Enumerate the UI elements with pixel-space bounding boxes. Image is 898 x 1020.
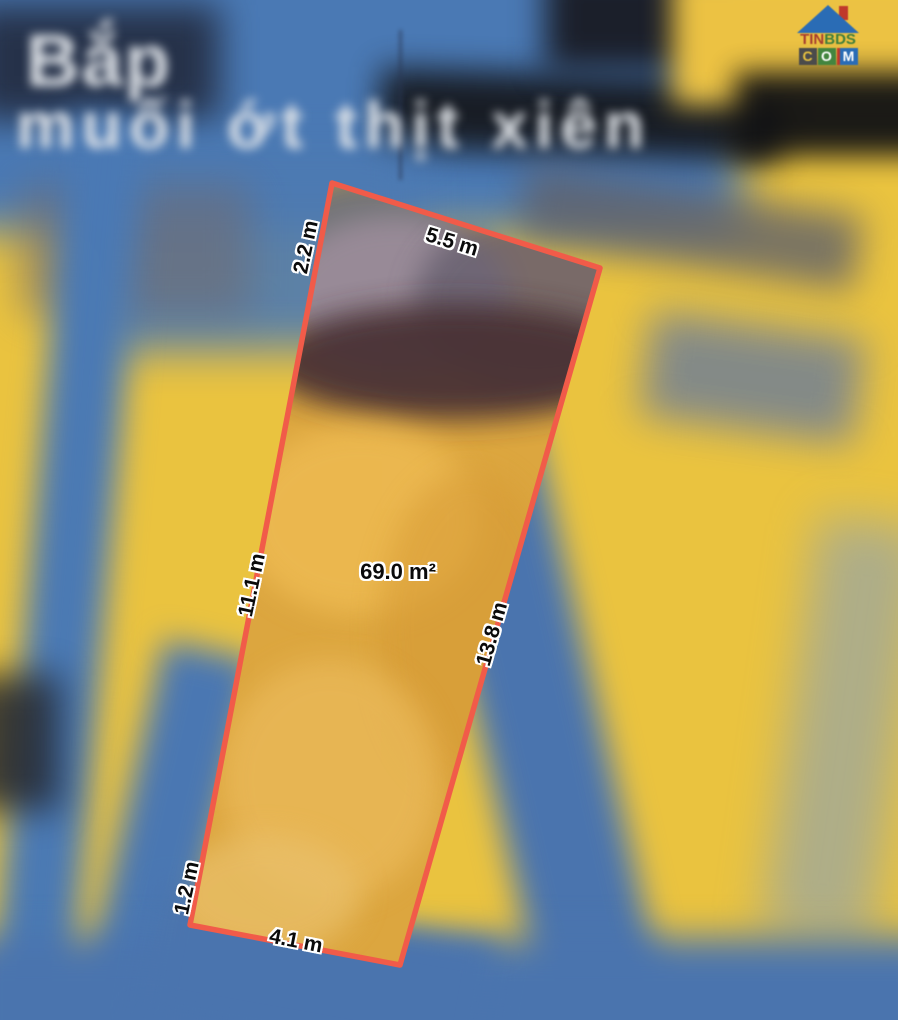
logo-text-tin: TIN [800,31,824,48]
map-canvas[interactable]: Bắp muối ớt thịt xiên 5.5 m 2.2 m 11.1 m… [0,0,898,1020]
logo-brand-text: TINBDS [790,32,866,47]
parcel-layer [0,0,898,1020]
logo-com-row: C O M [790,48,866,65]
logo-letter-m: M [837,48,858,65]
house-icon [795,4,861,34]
parcel-area-label: 69.0 m² [360,561,436,583]
logo-letter-c: C [799,48,817,65]
logo-letter-o: O [818,48,836,65]
logo-text-bds: BDS [824,31,856,48]
tinbds-logo: TINBDS C O M [790,4,866,70]
